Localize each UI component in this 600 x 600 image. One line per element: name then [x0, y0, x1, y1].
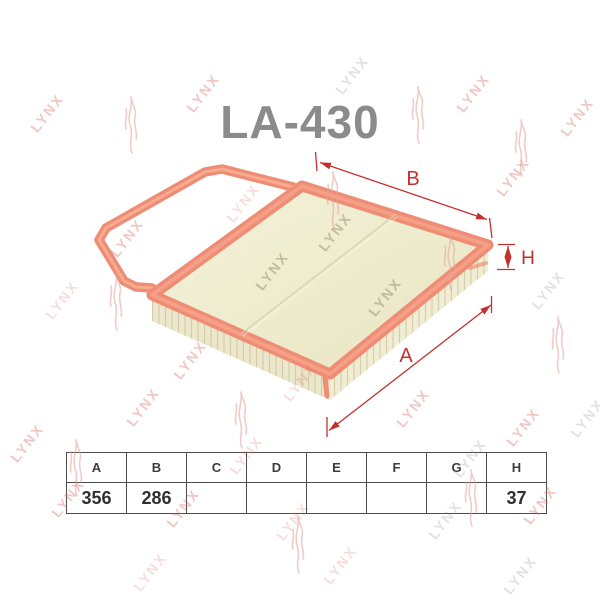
spec-header-e: E: [307, 453, 367, 483]
spec-value-d: [247, 483, 307, 514]
spec-header-f: F: [367, 453, 427, 483]
spec-header-a: A: [67, 453, 127, 483]
spec-value-h: 37: [487, 483, 547, 514]
spec-header-d: D: [247, 453, 307, 483]
spec-header-c: C: [187, 453, 247, 483]
spec-table-container: A B C D E F G H 356 286 37: [66, 452, 547, 514]
dimension-b-label: B: [406, 168, 419, 190]
spec-value-row: 356 286 37: [67, 483, 547, 514]
dimension-h-label: H: [521, 248, 535, 269]
spec-value-c: [187, 483, 247, 514]
seal-drip: [325, 378, 327, 396]
part-number-title: LA-430: [0, 95, 600, 149]
spec-header-row: A B C D E F G H: [67, 453, 547, 483]
spec-value-a: 356: [67, 483, 127, 514]
dimension-b-tick-left: [316, 152, 318, 171]
dimension-a-label: A: [399, 345, 413, 367]
spec-value-b: 286: [127, 483, 187, 514]
dimension-b-tick-right: [490, 218, 493, 238]
catalog-image: LA-430: [0, 0, 600, 600]
spec-value-f: [367, 483, 427, 514]
spec-header-h: H: [487, 453, 547, 483]
spec-header-g: G: [427, 453, 487, 483]
spec-header-b: B: [127, 453, 187, 483]
spec-value-g: [427, 483, 487, 514]
spec-value-e: [307, 483, 367, 514]
spec-table: A B C D E F G H 356 286 37: [66, 452, 547, 514]
